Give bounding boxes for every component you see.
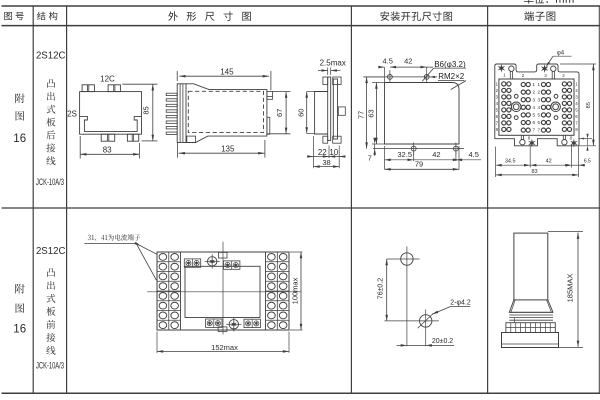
svg-text:2: 2 (575, 88, 578, 93)
svg-text:85: 85 (586, 102, 592, 108)
svg-text:7: 7 (368, 153, 372, 162)
svg-text:4.5: 4.5 (468, 150, 478, 159)
svg-text:16: 16 (13, 324, 26, 336)
svg-text:1: 1 (496, 82, 499, 87)
svg-text:7: 7 (575, 121, 578, 126)
svg-text:5: 5 (533, 113, 536, 118)
svg-text:4: 4 (538, 105, 541, 110)
svg-text:79: 79 (415, 160, 423, 169)
svg-text:7: 7 (496, 121, 499, 126)
svg-text:8: 8 (570, 135, 573, 140)
svg-text:145: 145 (220, 67, 234, 76)
svg-text:4.5: 4.5 (382, 57, 392, 66)
svg-text:77: 77 (357, 111, 366, 119)
svg-text:10: 10 (329, 148, 338, 157)
svg-text:185MAX: 185MAX (565, 274, 574, 303)
svg-text:135: 135 (221, 144, 235, 153)
svg-text:2: 2 (522, 73, 525, 78)
svg-text:32.5: 32.5 (397, 150, 412, 159)
svg-text:22: 22 (318, 148, 327, 157)
svg-text:4: 4 (580, 137, 585, 140)
svg-text:2: 2 (496, 88, 499, 93)
svg-text:8: 8 (528, 135, 531, 140)
svg-text:67: 67 (275, 109, 284, 117)
svg-text:76±0.2: 76±0.2 (378, 278, 385, 299)
svg-text:6: 6 (575, 114, 578, 119)
svg-text:2: 2 (533, 90, 536, 95)
svg-text:63: 63 (367, 109, 376, 117)
svg-text:6.5: 6.5 (584, 158, 591, 164)
svg-text:2S12C: 2S12C (36, 51, 66, 62)
svg-text:JCK-10A/3: JCK-10A/3 (36, 361, 64, 372)
svg-text:1: 1 (538, 82, 541, 87)
svg-text:3: 3 (533, 97, 536, 102)
svg-text:2.5max: 2.5max (320, 59, 346, 68)
svg-text:1: 1 (575, 82, 578, 87)
svg-text:2: 2 (538, 90, 541, 95)
svg-text:1: 1 (503, 73, 506, 78)
svg-text:83: 83 (531, 169, 537, 175)
svg-text:4: 4 (533, 105, 536, 110)
svg-text:152max: 152max (211, 343, 238, 352)
svg-text:2S12C: 2S12C (36, 246, 66, 257)
svg-text:φ4: φ4 (557, 51, 565, 57)
svg-text:38: 38 (322, 158, 330, 167)
svg-text:20±0.2: 20±0.2 (432, 338, 453, 345)
svg-text:6: 6 (538, 120, 541, 125)
svg-text:16: 16 (13, 133, 26, 145)
svg-text:42: 42 (404, 57, 412, 66)
svg-text:85: 85 (142, 106, 151, 114)
svg-text:5: 5 (575, 108, 578, 113)
svg-text:2S: 2S (67, 109, 77, 118)
svg-text:60: 60 (297, 109, 306, 117)
svg-text:7: 7 (533, 128, 536, 133)
svg-text:34.5: 34.5 (505, 159, 516, 165)
svg-text:7: 7 (538, 128, 541, 133)
svg-text:42: 42 (432, 150, 440, 159)
svg-text:3: 3 (575, 95, 578, 100)
svg-text:6: 6 (533, 120, 536, 125)
svg-text:83: 83 (103, 145, 112, 154)
svg-text:12C: 12C (100, 75, 115, 84)
svg-text:4: 4 (575, 101, 578, 106)
svg-text:5: 5 (496, 108, 499, 113)
svg-text:6: 6 (496, 114, 499, 119)
svg-text:2-φ4.2: 2-φ4.2 (450, 300, 471, 307)
svg-text:100max: 100max (290, 277, 299, 304)
svg-text:5: 5 (538, 113, 541, 118)
svg-text:RM2×2: RM2×2 (438, 72, 465, 81)
svg-text:8: 8 (496, 127, 499, 132)
svg-text:3: 3 (496, 95, 499, 100)
svg-text:3: 3 (544, 73, 547, 78)
svg-text:3: 3 (538, 97, 541, 102)
svg-text:B6(φ3.2): B6(φ3.2) (434, 60, 466, 69)
svg-text:1: 1 (533, 82, 536, 87)
svg-text:4: 4 (496, 101, 499, 106)
svg-text:2: 2 (562, 73, 565, 78)
svg-text:8: 8 (575, 127, 578, 132)
svg-text:JCK-10A/3: JCK-10A/3 (36, 177, 64, 188)
svg-text:42: 42 (546, 159, 552, 165)
